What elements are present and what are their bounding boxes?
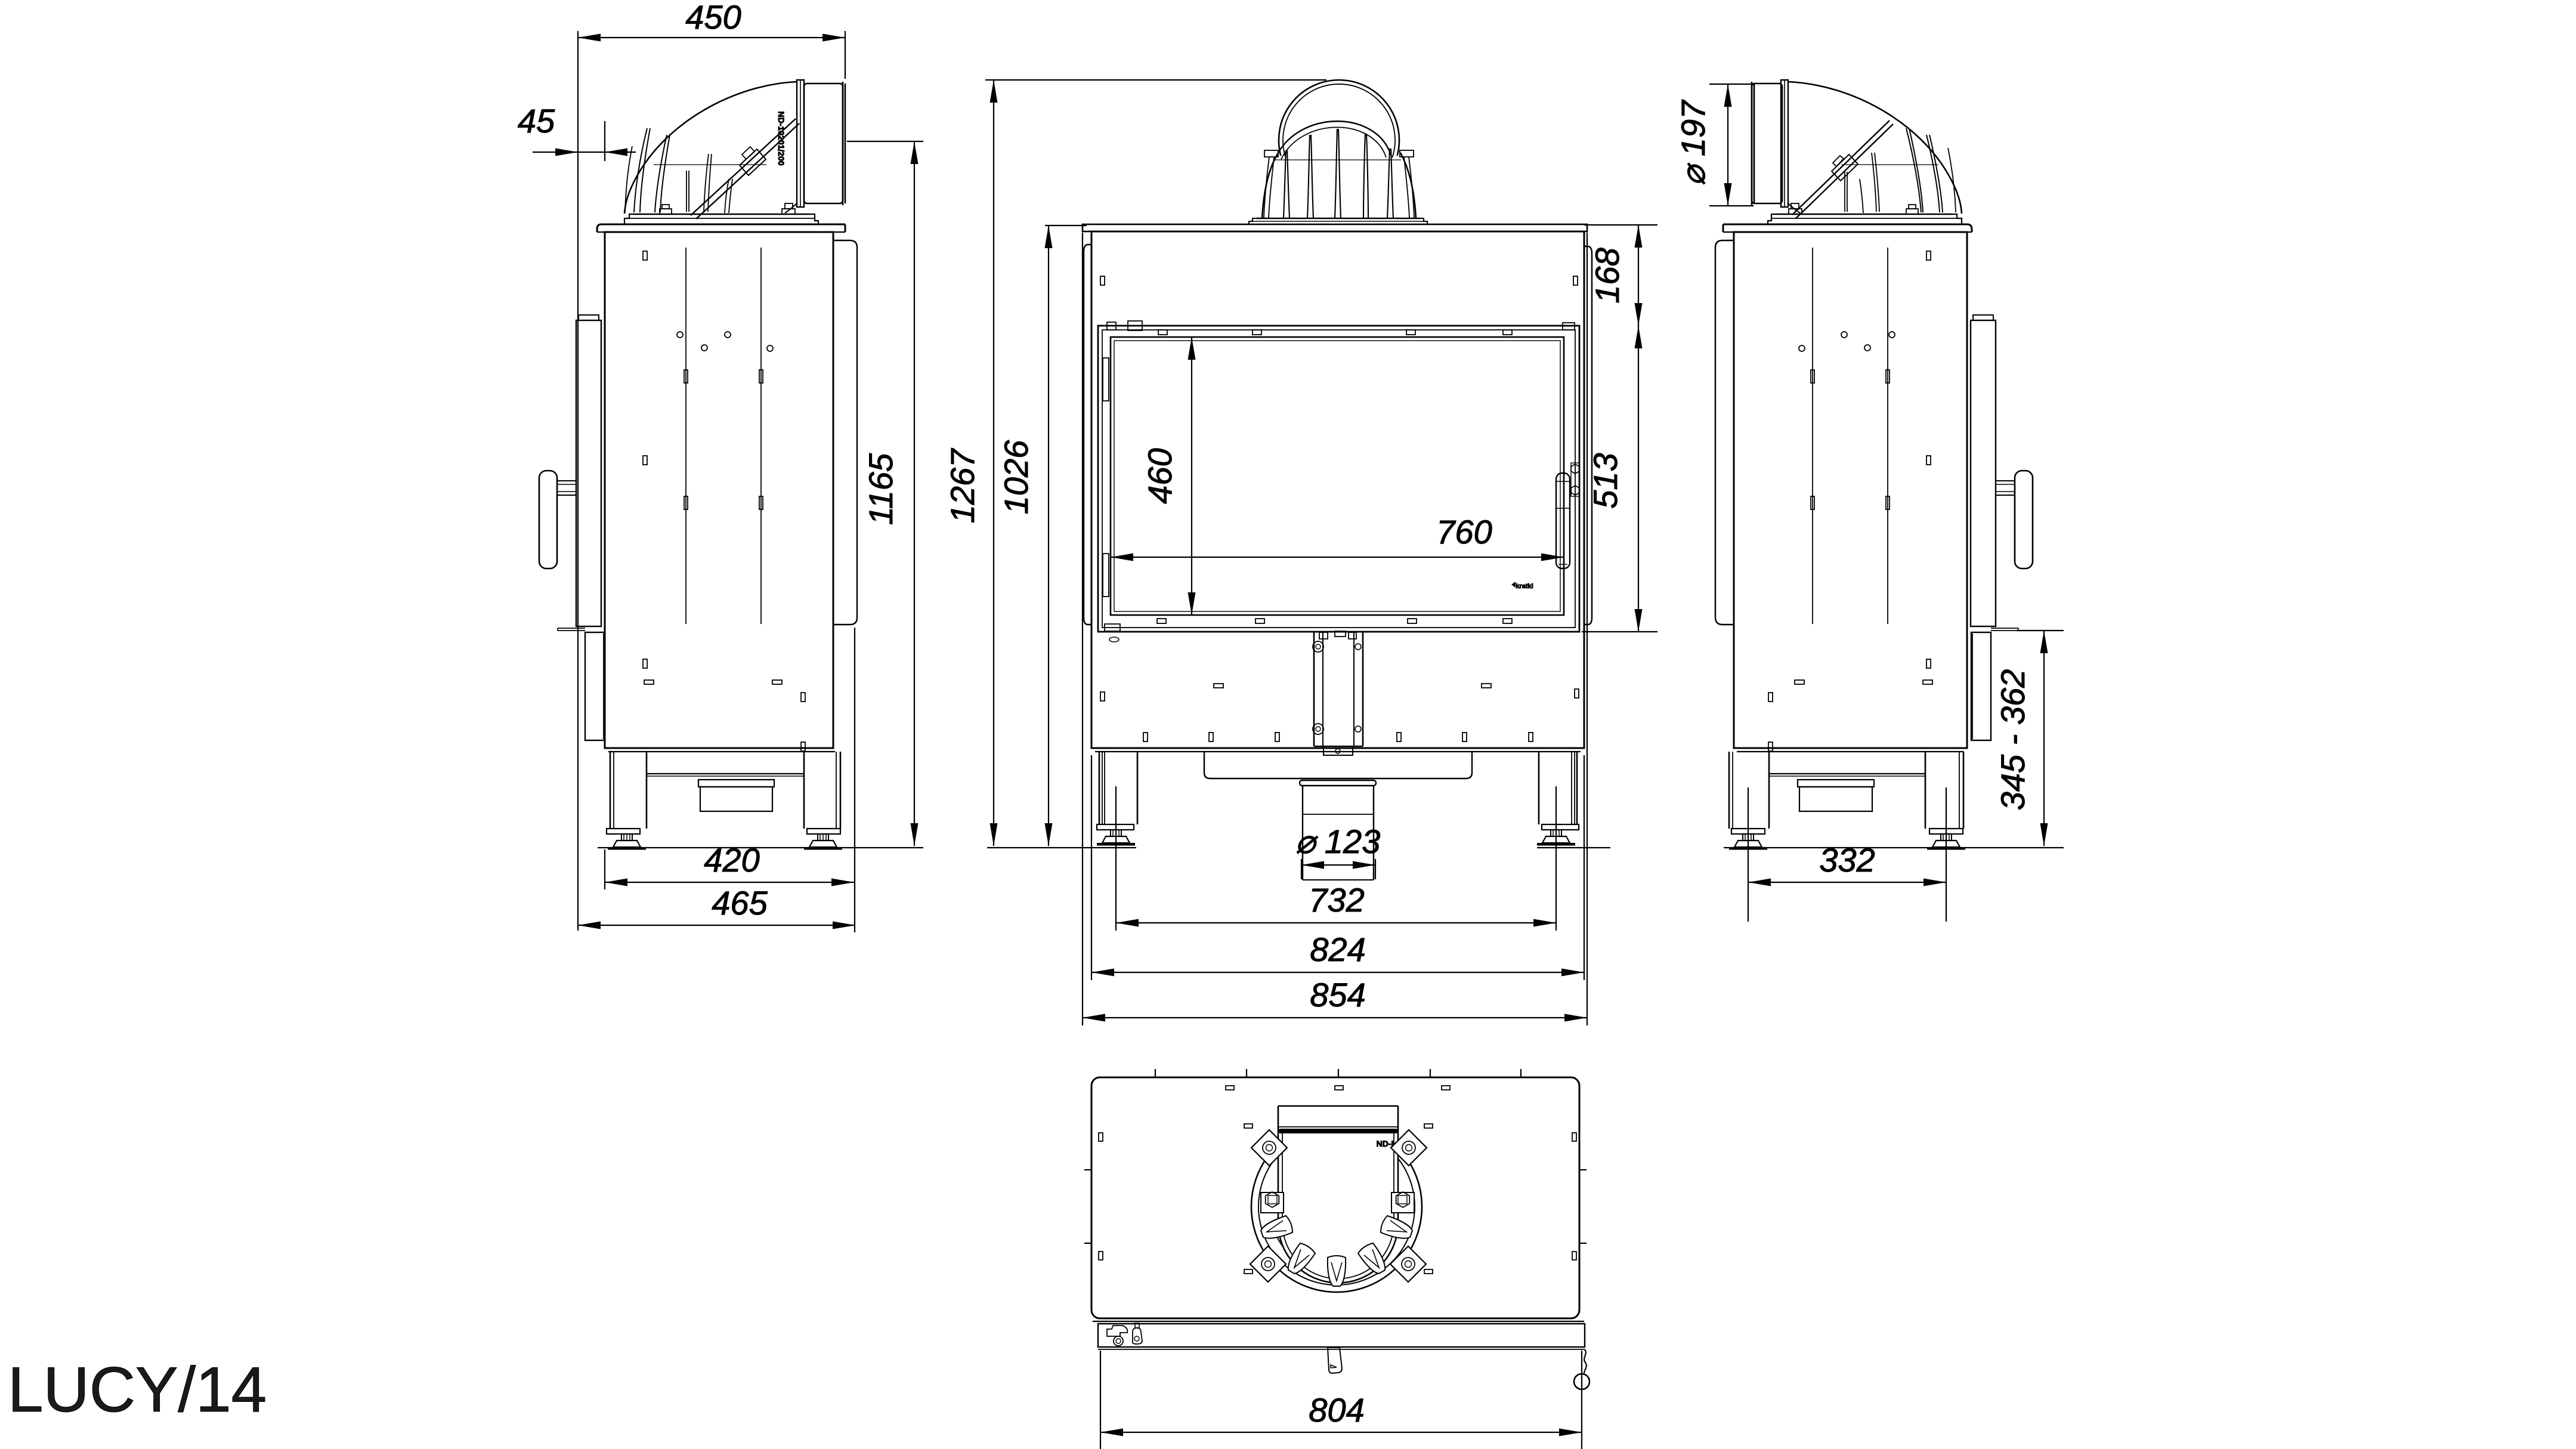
- svg-text:804: 804: [1309, 1391, 1364, 1429]
- svg-text:kratki: kratki: [1516, 583, 1533, 590]
- svg-text:824: 824: [1310, 931, 1365, 968]
- svg-text:168: 168: [1588, 248, 1626, 303]
- svg-text:45: 45: [518, 102, 555, 140]
- svg-text:760: 760: [1436, 513, 1492, 551]
- svg-text:732: 732: [1309, 881, 1364, 919]
- svg-text:1267: 1267: [944, 448, 981, 523]
- svg-text:854: 854: [1310, 976, 1365, 1014]
- svg-text:1165: 1165: [862, 453, 899, 525]
- svg-text:ND-I: ND-I: [1377, 1139, 1394, 1148]
- svg-text:465: 465: [712, 884, 768, 922]
- svg-text:ND-10201/200: ND-10201/200: [777, 111, 786, 165]
- svg-text:1026: 1026: [997, 440, 1035, 514]
- svg-text:345 - 362: 345 - 362: [1994, 669, 2031, 811]
- svg-text:420: 420: [704, 841, 759, 879]
- svg-text:LUCY/14: LUCY/14: [8, 1354, 267, 1425]
- svg-text:⌀ 197: ⌀ 197: [1674, 100, 1712, 186]
- svg-text:460: 460: [1141, 448, 1179, 503]
- svg-text:332: 332: [1819, 841, 1875, 879]
- svg-text:450: 450: [685, 0, 741, 36]
- svg-text:⌀ 123: ⌀ 123: [1295, 823, 1381, 860]
